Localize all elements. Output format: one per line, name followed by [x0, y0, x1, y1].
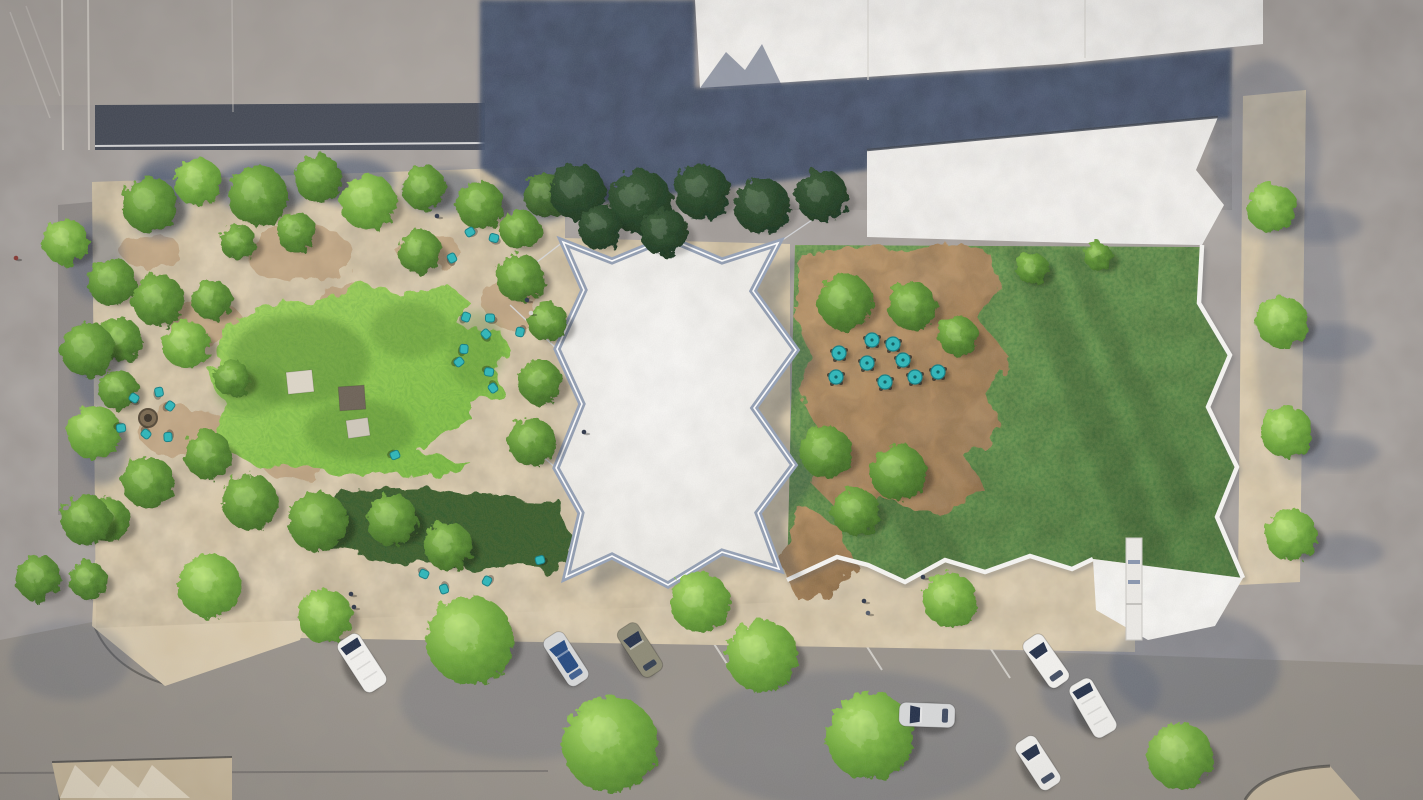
aerial-render-viewport [0, 0, 1423, 800]
aerial-park-rendering [0, 0, 1423, 800]
layer-atmosphere [0, 0, 1423, 800]
vignette [0, 0, 1423, 800]
